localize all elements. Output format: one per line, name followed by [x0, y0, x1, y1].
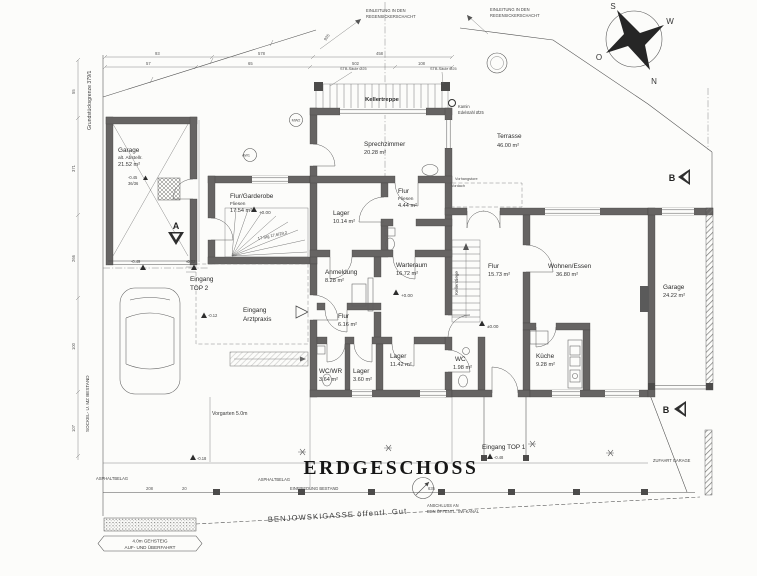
room-garage-right-name: Garage — [663, 284, 685, 291]
dim-93: 93 — [155, 51, 160, 56]
dim-371: 371 — [71, 164, 76, 172]
eingang-arzt-l1: Eingang — [243, 307, 267, 314]
room-warteraum-area: 16.72 m² — [396, 271, 418, 277]
room-wc198-name: WC — [455, 356, 466, 363]
level-m045: -0.45 — [128, 175, 138, 180]
asphalt-label-2: ASPHALTBELAG — [258, 477, 290, 482]
site-labels: ERDGESCHOSS BENJOWSKIGASSE öffentl. Gut … — [85, 7, 691, 550]
dim-55: 55 — [71, 89, 76, 94]
dim-502: 502 — [352, 61, 360, 66]
eingang-top1: Eingang TOP 1 — [482, 444, 526, 451]
compass-n: N — [651, 77, 657, 86]
level-m049: -0.49 — [131, 259, 141, 264]
room-wohnen-name: Wohnen/Essen — [548, 263, 592, 270]
section-b-top-label: B — [669, 173, 676, 183]
level-m048: -0.48 — [494, 455, 504, 460]
marker-aw1: AW1 — [242, 154, 250, 158]
compass-w: W — [666, 17, 674, 26]
room-lager1142-name: Lager — [390, 353, 407, 360]
room-garage-right-area: 24.22 m² — [663, 293, 685, 299]
eingang-arzt-l2: Arztpraxis — [243, 316, 271, 323]
room-lager360-name: Lager — [353, 368, 370, 375]
grundstuecksgrenze-label: Grundstücksgrenze 379/1 — [87, 70, 93, 130]
room-warteraum-name: Warteraum — [396, 262, 427, 269]
dim-266: 266 — [71, 254, 76, 262]
floor-plan-svg: S W O N A B B Garage alt. Abstellr. 21.5… — [0, 0, 757, 576]
level-p000: +0.00 — [259, 210, 271, 215]
room-lager360-area: 3.60 m² — [353, 377, 372, 383]
room-garage-left-sub: alt. Abstellr. — [118, 155, 143, 161]
level-p000-warteraum: +0.00 — [401, 293, 413, 298]
asphalt-label-1: ASPHALTBELAG — [96, 476, 128, 481]
vorgarten-label: Vorgarten 5.0m — [212, 411, 247, 417]
dim-935: 935 — [323, 32, 331, 41]
room-labels: Garage alt. Abstellr. 21.52 m² Flur/Gard… — [118, 133, 685, 383]
room-flur444-area: 4.44 m² — [398, 203, 417, 209]
annotations — [244, 15, 508, 162]
vorhangstore-label: Vorhangstore — [455, 177, 478, 181]
saule-label-1: STB-Säule Ø25 — [340, 67, 367, 71]
garage-left — [106, 117, 199, 265]
level-m012: -0.12 — [208, 313, 218, 318]
gehsteig-l2: AUF- UND ÜBERFAHRT — [125, 544, 176, 550]
zufahrt-label: ZUFAHRT GARAGE — [653, 458, 691, 463]
room-lager1014-name: Lager — [333, 210, 350, 217]
room-kueche-area: 9.28 m² — [536, 362, 555, 368]
kellertreppe-label: Kellertreppe — [365, 97, 400, 103]
level-m002: -0.02 — [186, 259, 196, 264]
room-terrasse-name: Terrasse — [497, 133, 522, 140]
room-flur1573-area: 15.73 m² — [488, 272, 510, 278]
room-garage-left-area: 21.52 m² — [118, 162, 140, 168]
dim-107: 107 — [71, 424, 76, 432]
einleitung-left-l2: REGENSICKERSCHACHT — [366, 14, 416, 19]
room-flurgarderobe-area: 17.54 m² — [230, 208, 252, 214]
dim-635: 635 — [428, 486, 436, 491]
eingang-top2-l2: TOP 2 — [190, 285, 209, 292]
anschluss-l2: DEN ÖFFENTL. SW-KANAL — [427, 509, 480, 514]
compass-rose: S W O N — [596, 2, 674, 86]
room-wcwr-area: 3.64 m² — [319, 377, 338, 383]
dim-578: 578 — [258, 51, 266, 56]
room-lager1014-area: 10.14 m² — [333, 219, 355, 225]
marker-mw2: MW2 — [292, 119, 301, 123]
eingang-top2-l1: Eingang — [190, 276, 214, 283]
room-flur1573-name: Flur — [488, 263, 500, 270]
sidewalk-strip — [104, 518, 196, 531]
dim-208: 208 — [146, 486, 154, 491]
dim-458: 458 — [376, 51, 384, 56]
room-anmeldung-area: 8.28 m² — [325, 278, 344, 284]
room-flur444-name: Flur — [398, 188, 410, 195]
entrance-arrow — [296, 306, 308, 318]
chimney — [640, 286, 649, 312]
room-flurgarderobe-sub: Fliesen — [230, 201, 246, 207]
room-terrasse-area: 46.00 m² — [497, 143, 519, 149]
section-a-label: A — [173, 221, 180, 231]
room-flur616-name: Flur — [338, 313, 350, 320]
room-flur616-area: 6.16 m² — [338, 322, 357, 328]
level-m018: -0.18 — [197, 456, 207, 461]
street-label: BENJOWSKIGASSE öffentl. Gut — [268, 506, 408, 524]
dim-20: 20 — [182, 486, 187, 491]
compass-s: S — [610, 2, 615, 11]
dim-57: 57 — [146, 61, 151, 66]
gehsteig-l1: 4.0m GEHSTEIG — [132, 539, 168, 544]
room-wcwr-name: WC/WR — [319, 368, 342, 375]
vordach-label: Vordach — [451, 184, 465, 188]
landscape-marks — [298, 441, 614, 456]
car — [120, 288, 180, 394]
level-pm000: ±0.00 — [487, 324, 499, 329]
floor-plan-page: S W O N A B B Garage alt. Abstellr. 21.5… — [0, 0, 757, 576]
saule-label-2: STB-Säule Ø25 — [430, 67, 457, 71]
stair-labels: Kellertreppe Kellerstiege 17 Stg 17,6/29… — [257, 97, 459, 295]
kamin-l2: Edelstahl Ø25 — [458, 110, 484, 115]
anschluss-l1: ANSCHLUSS AN — [427, 503, 459, 508]
room-garage-left-name: Garage — [118, 147, 140, 154]
compass-o: O — [596, 53, 602, 62]
room-lager1142-area: 11.42 m² — [390, 362, 412, 368]
room-sprechzimmer-name: Sprechzimmer — [364, 141, 406, 148]
room-wohnen-area: 36.80 m² — [556, 272, 578, 278]
grate-size: 36/36 — [128, 181, 139, 186]
page-title: ERDGESCHOSS — [304, 458, 479, 479]
dim-65: 65 — [248, 61, 253, 66]
section-b-bottom-label: B — [663, 405, 670, 415]
room-flurgarderobe-name: Flur/Garderobe — [230, 193, 274, 200]
dim-100: 100 — [71, 342, 76, 350]
einfriedung-label: EINFRIEDUNG BESTAND — [290, 486, 338, 491]
dim-108: 108 — [418, 61, 426, 66]
floor-grate — [158, 178, 180, 200]
kamin-l1: Kamin — [458, 104, 470, 109]
room-flur444-sub: Fliesen — [398, 196, 414, 202]
winder-stair — [225, 208, 308, 257]
room-sprechzimmer-area: 20.28 m² — [364, 150, 386, 156]
section-markers: A B B — [168, 169, 690, 417]
room-wc198-area: 1.98 m² — [453, 365, 472, 371]
einleitung-left-l1: EINLEITUNG IN DEN — [366, 8, 406, 13]
existing-wall-hatched — [705, 430, 712, 495]
room-kueche-name: Küche — [536, 353, 555, 360]
einleitung-right-l1: EINLEITUNG IN DEN — [490, 7, 530, 12]
einleitung-right-l2: REGENSICKERSCHACHT — [490, 13, 540, 18]
room-anmeldung-name: Anmeldung — [325, 269, 358, 276]
sockel-label: SOCKEL- U. MZ BESTAND — [85, 375, 90, 432]
kellerstiege-label: Kellerstiege — [454, 271, 459, 295]
